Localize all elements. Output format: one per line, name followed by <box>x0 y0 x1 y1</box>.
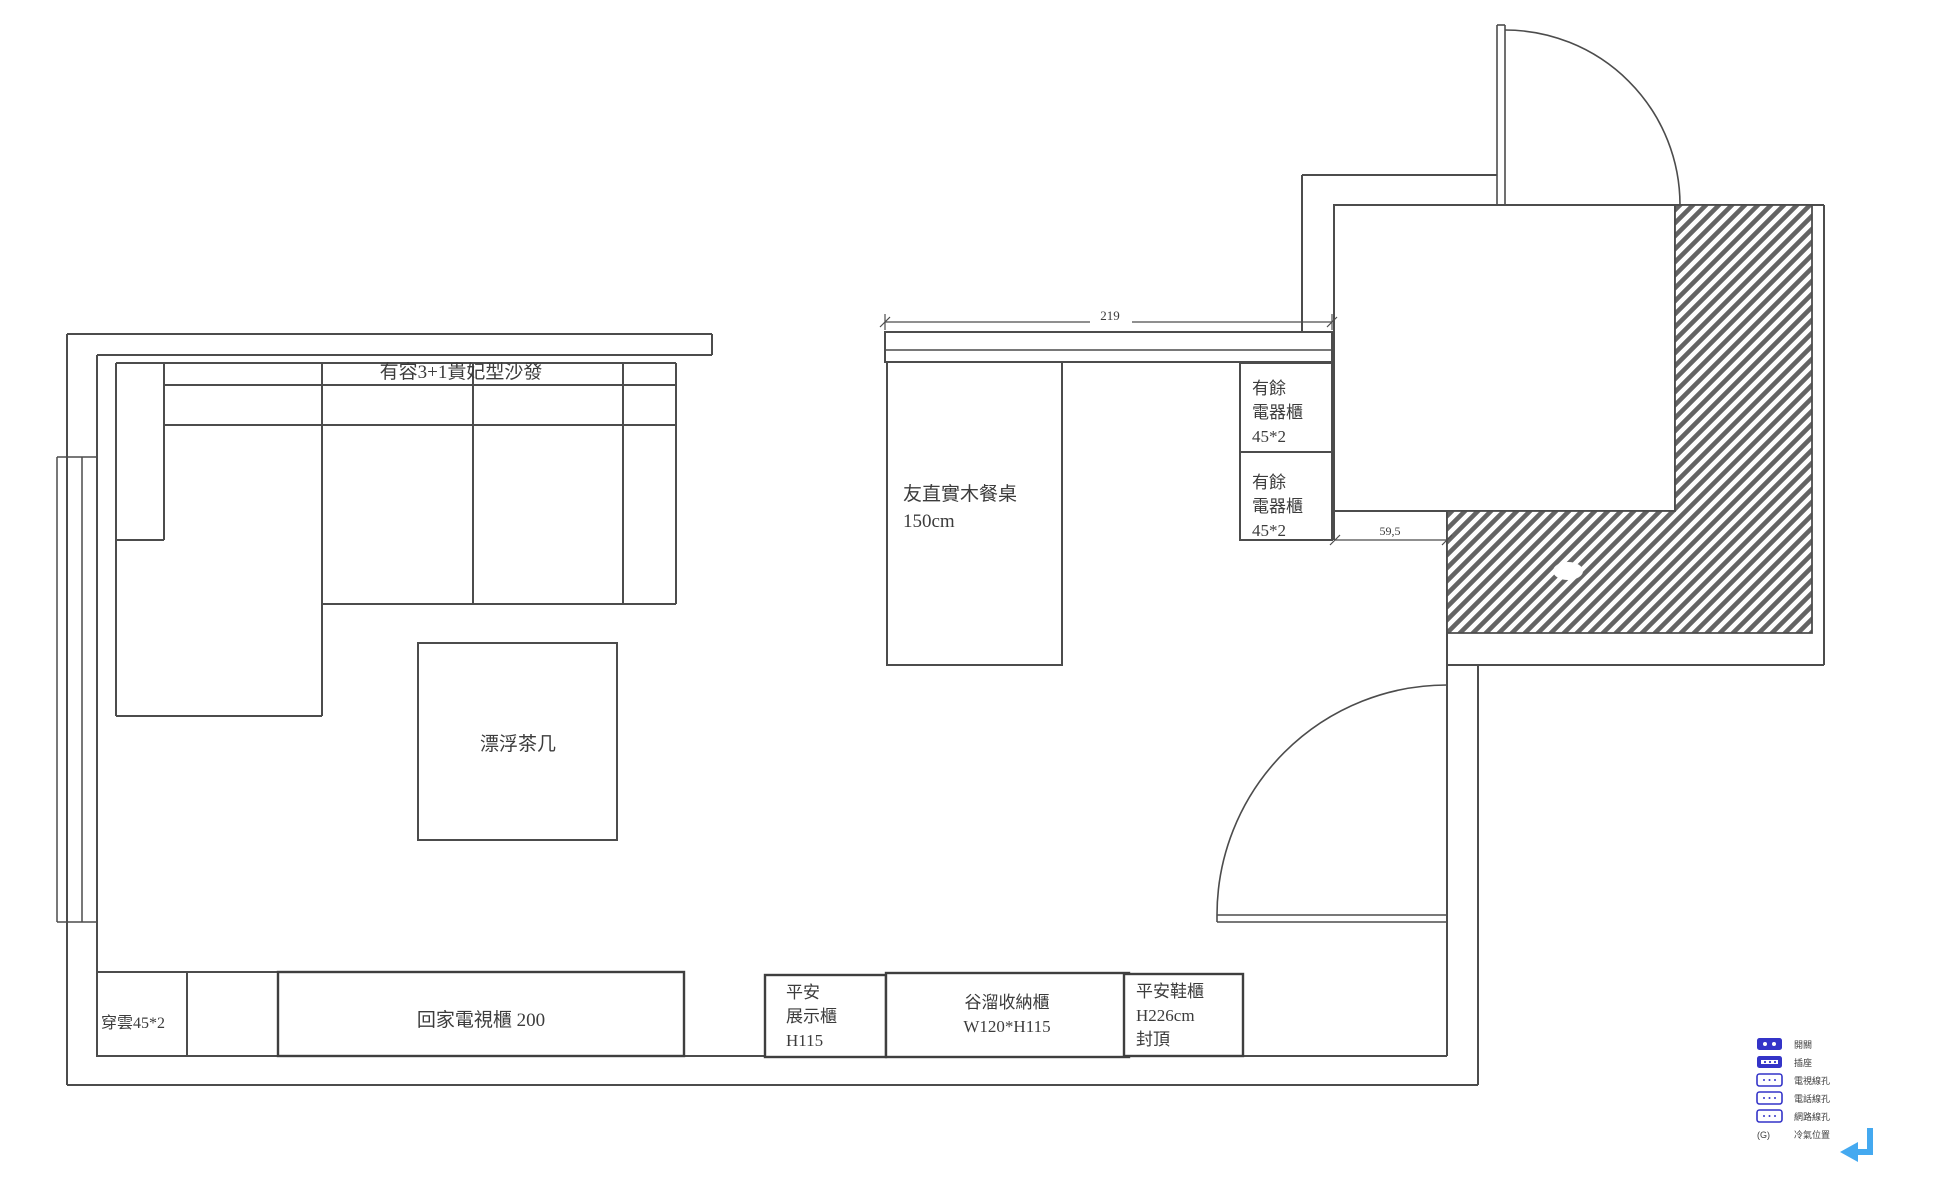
display-cabinet-label: 平安 <box>786 983 820 1002</box>
coffee-table-label: 漂浮茶几 <box>480 733 556 755</box>
legend-row: (G) 冷氣位置 <box>1757 1129 1830 1140</box>
floor-plan-page: 有容3+1貴妃型沙發 漂浮茶几 219 友直實木餐桌 150cm 有餘 電器櫃 … <box>0 0 1944 1190</box>
legend-row: 電視線孔 <box>1757 1074 1830 1086</box>
switch-icon <box>1757 1038 1782 1050</box>
legend-label: 電話線孔 <box>1794 1093 1830 1104</box>
entry-door <box>1217 685 1447 922</box>
door-leaf <box>1217 915 1447 922</box>
legend-row: 網路線孔 <box>1757 1110 1830 1122</box>
sofa-label: 有容3+1貴妃型沙發 <box>380 361 543 383</box>
phone-jack-icon <box>1757 1092 1782 1104</box>
counter <box>885 332 1332 362</box>
cabinet-label: 有餘 <box>1252 473 1286 492</box>
door-swing-arc <box>1505 30 1680 205</box>
legend-label: 插座 <box>1794 1057 1812 1068</box>
cabinet-label: 有餘 <box>1252 379 1286 398</box>
door-swing-arc <box>1217 685 1447 915</box>
storage-cabinet-label: W120*H115 <box>963 1017 1050 1036</box>
bathroom-door <box>1497 25 1680 205</box>
cabinet-label: 電器櫃 <box>1252 497 1303 516</box>
dimension-gap-label: 59,5 <box>1380 524 1401 538</box>
empty-cabinet <box>187 972 278 1056</box>
legend-row: 插座 <box>1757 1056 1812 1068</box>
legend-row: 電話線孔 <box>1757 1092 1830 1104</box>
shoe-cabinet-label: 平安鞋櫃 <box>1136 982 1204 1001</box>
outlet-icon <box>1757 1056 1782 1068</box>
display-cabinet-label: H115 <box>786 1031 823 1050</box>
shoe-cabinet-label: 封頂 <box>1136 1030 1170 1049</box>
side-cabinet: 穿雲45*2 <box>97 972 187 1056</box>
bathroom-room <box>1334 205 1675 511</box>
dining-table-label-line1: 友直實木餐桌 <box>903 483 1017 505</box>
legend: 開關 插座 電視線孔 <box>1757 1038 1830 1140</box>
floor-plan-svg: 有容3+1貴妃型沙發 漂浮茶几 219 友直實木餐桌 150cm 有餘 電器櫃 … <box>0 0 1944 1190</box>
legend-label: 網路線孔 <box>1794 1111 1830 1122</box>
tv-cabinet: 回家電視櫃 200 <box>278 972 684 1056</box>
storage-cabinet: 谷溜收納櫃 W120*H115 <box>886 973 1129 1057</box>
cabinet-label: 45*2 <box>1252 427 1286 446</box>
appliance-cabinet-upper: 有餘 電器櫃 45*2 <box>1240 363 1332 452</box>
tv-jack-icon <box>1757 1074 1782 1086</box>
storage-cabinet-label: 谷溜收納櫃 <box>965 993 1050 1012</box>
display-cabinet: 平安 展示櫃 H115 <box>765 975 886 1057</box>
tv-cabinet-label: 回家電視櫃 200 <box>417 1009 545 1031</box>
legend-label: 冷氣位置 <box>1794 1129 1830 1140</box>
display-cabinet-label: 展示櫃 <box>786 1007 837 1026</box>
shoe-cabinet: 平安鞋櫃 H226cm 封頂 <box>1124 974 1243 1056</box>
hatch-marker <box>1553 562 1583 580</box>
appliance-cabinet-lower: 有餘 電器櫃 45*2 <box>1240 452 1332 540</box>
side-cabinet-label: 穿雲45*2 <box>101 1014 165 1032</box>
shoe-cabinet-label: H226cm <box>1136 1006 1195 1025</box>
return-arrow-icon[interactable] <box>1840 1128 1870 1162</box>
window-left <box>57 457 97 922</box>
dimension-counter-label: 219 <box>1100 308 1120 323</box>
door-leaf <box>1497 25 1505 205</box>
cabinet-label: 45*2 <box>1252 521 1286 540</box>
legend-label: 電視線孔 <box>1794 1075 1830 1086</box>
cabinet-label: 電器櫃 <box>1252 403 1303 422</box>
dining-table-label-line2: 150cm <box>903 511 955 532</box>
legend-row: 開關 <box>1757 1038 1812 1050</box>
ac-icon: (G) <box>1757 1130 1770 1140</box>
network-jack-icon <box>1757 1110 1782 1122</box>
legend-label: 開關 <box>1794 1040 1812 1050</box>
